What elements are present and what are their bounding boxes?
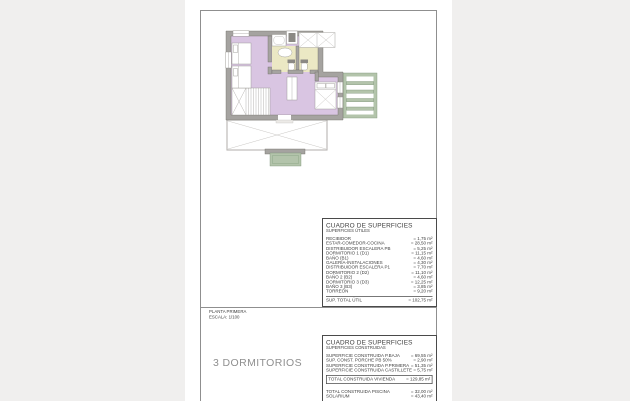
row-label: TORREÓN [326,290,348,295]
total-label: SUP. TOTAL ÚTIL [326,297,362,305]
door-step [276,120,293,123]
row-label: SOLARIUM [326,395,350,400]
bed-3 [315,82,336,109]
table-superficies-construidas: CUADRO DE SUPERFICIES SUPERFICIES CONSTR… [322,335,437,401]
screenshot-root: CUADRO DE SUPERFICIES SUPERFICIES ÚTILES… [0,0,630,401]
title-block: PLANTA PRIMERA ESCALA: 1/100 [209,310,339,323]
window-right-wall-lower [337,97,343,108]
window-top-wall [233,31,249,37]
bed-2 [232,66,251,88]
table-row: SOLARIUM= 43,40 m² [326,395,433,400]
terrace-door-opening [278,115,291,120]
total-value: = 129,85 m² [406,375,430,383]
bathtub [272,35,286,47]
table-row: TORREÓN= 9,20 m² [326,290,433,295]
total-label: TOTAL CONSTRUIDA VIVIENDA [328,375,395,383]
bed-1 [232,43,251,64]
plan-scale: ESCALA: 1/100 [209,315,307,320]
balcony-pergola [343,73,377,118]
chimney-flue [287,31,298,44]
table-subtitle: SUPERFICIES ÚTILES [326,229,433,234]
floor-plan [200,20,437,180]
sheet-caption: 3 DORMITORIOS [200,357,315,369]
planter [270,153,301,166]
table-title: CUADRO DE SUPERFICIES [326,338,433,346]
row-value: = 9,20 m² [413,290,432,295]
bathroom-sink [278,48,292,57]
row-label: SUPERFICIE CONSTRUIDA CASTILLETE [326,368,412,373]
bathroom-floor [272,46,318,72]
table-row: SUPERFICIE CONSTRUIDA CASTILLETE= 5,75 m… [326,368,433,373]
table-total-row: TOTAL CONSTRUIDA VIVIENDA= 129,85 m² [326,375,433,384]
total-value: = 102,75 m² [408,297,432,305]
toilet-1 [288,60,296,71]
table-title: CUADRO DE SUPERFICIES [326,221,433,229]
table-subtitle: SUPERFICIES CONSTRUIDAS [326,346,433,351]
row-value: = 5,75 m² [413,368,432,373]
title-block-divider-line [200,307,437,308]
staircase [232,88,270,115]
terrace-roof [227,120,327,150]
toilet-2 [301,60,309,71]
table-total-row: SUP. TOTAL ÚTIL= 102,75 m² [326,296,433,305]
window-right-wall-upper [337,82,343,93]
table-superficies-utiles: CUADRO DE SUPERFICIES SUPERFICIES ÚTILES… [322,218,437,307]
rooftop-closet [299,33,335,48]
window-left-wall [226,52,232,68]
wardrobe [287,77,297,100]
row-value: = 43,40 m² [411,395,433,400]
